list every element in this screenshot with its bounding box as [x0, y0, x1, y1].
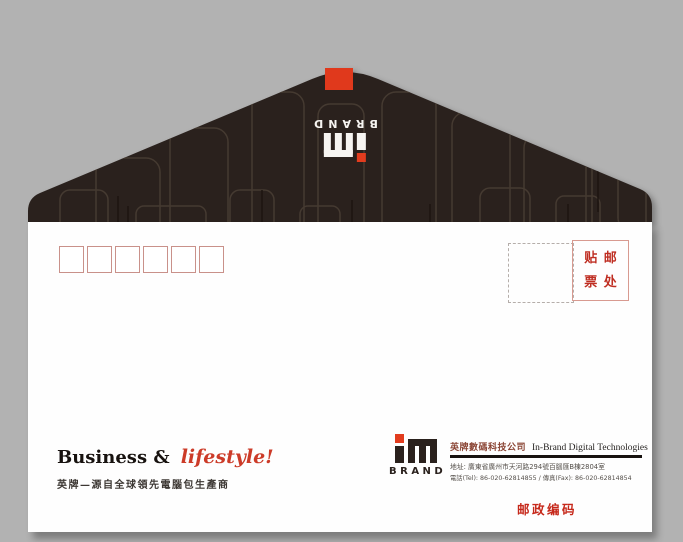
stamp-dashed-outline	[508, 243, 574, 303]
logo-i-bar	[357, 133, 366, 150]
envelope-design-canvas: BRAND 贴 邮 票 处 Business & lifestyle! 英牌—源…	[0, 0, 683, 542]
stamp-char: 票	[584, 276, 597, 289]
company-name-chinese: 英牌數碼科技公司	[450, 440, 526, 453]
postal-code-box	[171, 246, 196, 273]
brand-logo-inverted: BRAND	[309, 118, 381, 162]
postal-code-box	[115, 246, 140, 273]
company-info-block: 英牌數碼科技公司 In-Brand Digital Technologies 地…	[450, 440, 642, 482]
company-address: 地址: 廣東省廣州市天河路294號百腦匯B棟2804室	[450, 461, 642, 471]
brand-wordmark: BRAND	[386, 467, 446, 477]
postal-code-box	[87, 246, 112, 273]
postal-code-box	[59, 246, 84, 273]
in-monogram-icon	[324, 133, 366, 162]
logo-n-shape	[408, 439, 437, 463]
postal-code-label: 邮政编码	[517, 499, 577, 518]
stamp-char: 处	[604, 276, 617, 289]
slogan-chinese: 英牌—源自全球領先電腦包生產商	[57, 476, 230, 491]
slogan-lifestyle: lifestyle!	[181, 446, 274, 468]
company-name-english: In-Brand Digital Technologies	[532, 443, 648, 453]
logo-n-shape	[324, 133, 353, 157]
brand-wordmark: BRAND	[309, 118, 381, 129]
stamp-char: 贴	[584, 252, 597, 265]
logo-red-dot	[395, 434, 404, 443]
logo-i-bar	[395, 446, 404, 463]
slogan-english: Business &	[57, 447, 170, 468]
brand-logo: BRAND	[386, 434, 446, 477]
postal-code-box	[143, 246, 168, 273]
slogan-line: Business & lifestyle!	[57, 446, 274, 468]
postal-code-box	[199, 246, 224, 273]
company-phone-fax: 電話(Tel): 86-020-62814855 / 傳真(Fax): 86-0…	[450, 473, 642, 482]
stamp-char: 邮	[604, 252, 617, 265]
in-monogram-icon	[395, 434, 437, 463]
flap-red-tab	[325, 68, 353, 90]
company-name-row: 英牌數碼科技公司 In-Brand Digital Technologies	[450, 440, 642, 453]
stamp-here-box: 贴 邮 票 处	[572, 240, 629, 301]
envelope-flap	[0, 0, 683, 224]
postal-code-boxes	[59, 246, 224, 273]
logo-red-dot	[357, 153, 366, 162]
company-divider-rule	[450, 455, 642, 458]
flap-logo-wrap: BRAND	[309, 118, 381, 162]
